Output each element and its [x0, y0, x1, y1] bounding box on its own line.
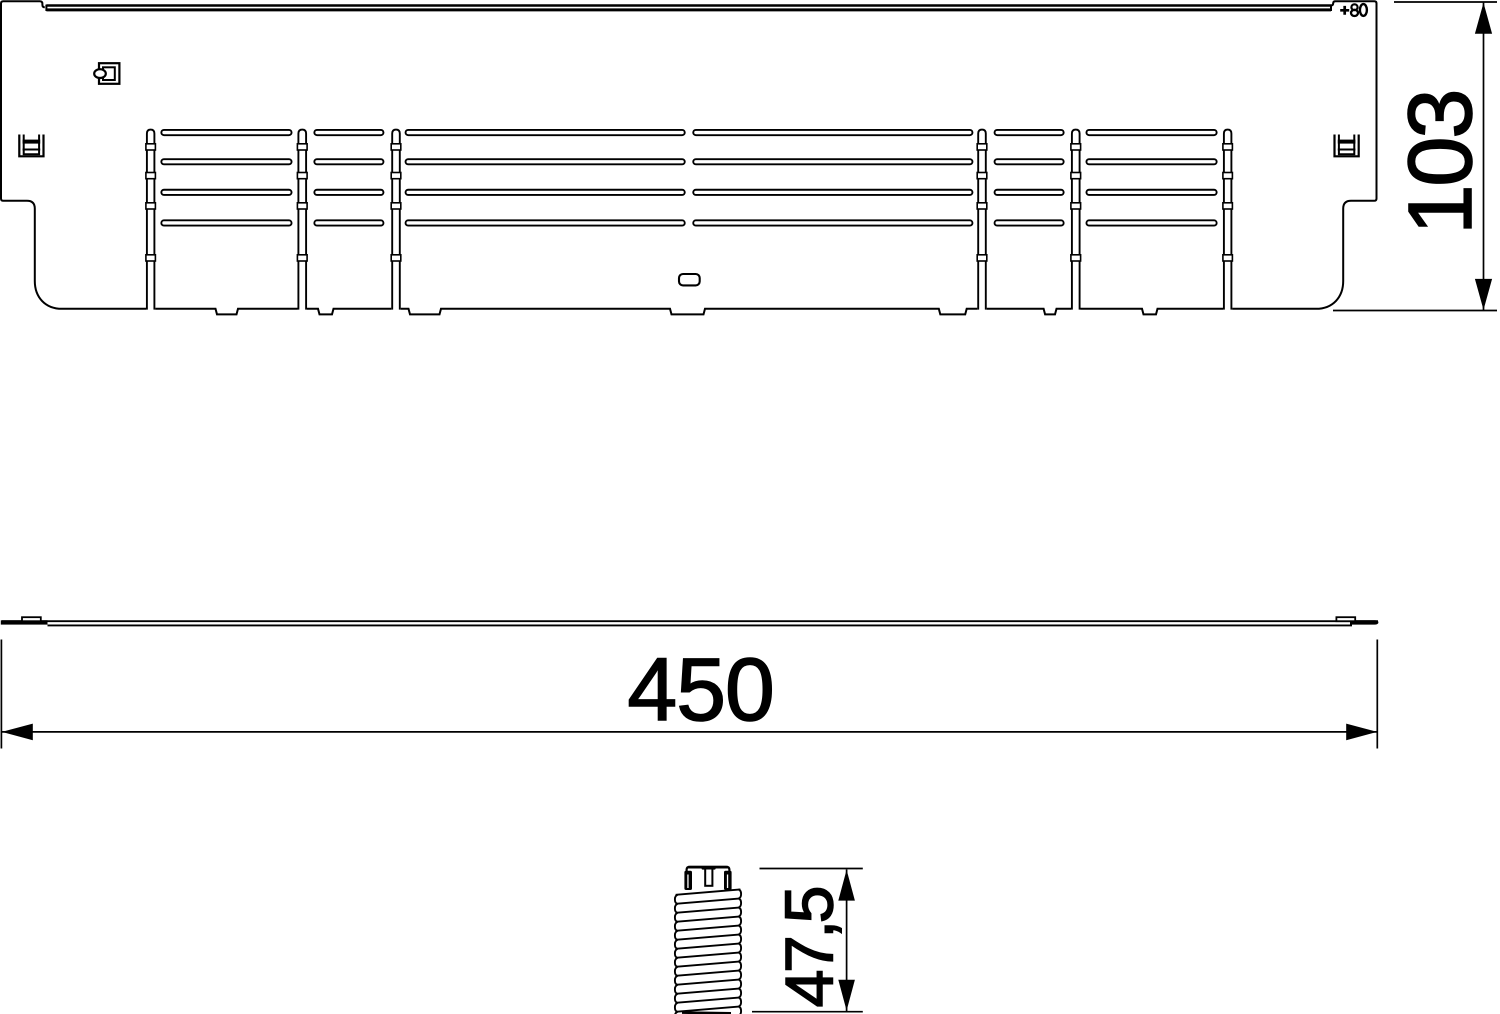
svg-text:103: 103	[1391, 91, 1491, 235]
svg-text:47,5: 47,5	[771, 888, 847, 1007]
svg-text:450: 450	[627, 639, 773, 739]
